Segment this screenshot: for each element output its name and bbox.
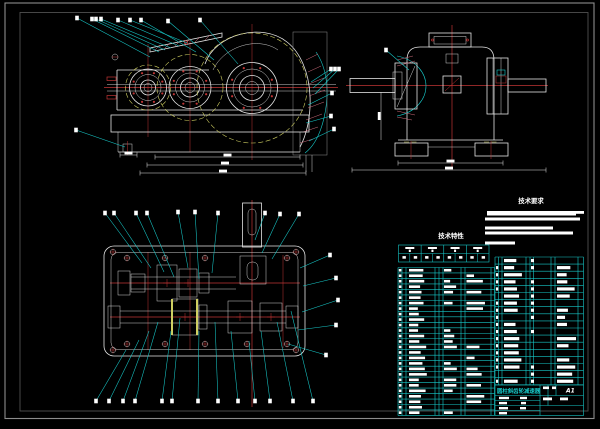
bom-cell-text (409, 296, 421, 299)
part-balloon-label (278, 212, 282, 217)
tech-requirements-heading: 技术要求 (518, 196, 544, 205)
part-balloon-label (94, 17, 98, 22)
bom-cell-text (531, 259, 534, 262)
bom-cell-text (409, 313, 419, 316)
flange-bolt (153, 101, 155, 103)
bom-cell-text (409, 274, 423, 277)
part-balloon-label (145, 211, 149, 216)
bom-cell-text (444, 362, 451, 365)
part-balloon-label (116, 18, 120, 23)
title-block-text (499, 397, 509, 399)
bom-cell-text (399, 296, 402, 299)
bom-cell-text (409, 411, 419, 414)
bom-cell-text (409, 291, 422, 294)
bom-cell-text (531, 373, 534, 376)
bom-cell-text (399, 291, 402, 294)
bom-cell-text (496, 309, 498, 312)
part-balloon-label (324, 353, 328, 358)
flange-bolt (153, 72, 155, 74)
bom-cell-text (399, 390, 402, 393)
bom-cell-text (444, 411, 453, 414)
side-view (346, 25, 548, 168)
bom-cell-text (409, 335, 424, 338)
flange-bolt (243, 107, 245, 109)
bom-cell-text (496, 380, 498, 383)
part-balloon-label (253, 399, 257, 404)
bom-cell-text (557, 273, 567, 276)
bom-cell-text (496, 280, 498, 283)
bom-cell-text (504, 273, 522, 276)
bom-cell-text (444, 291, 453, 294)
bom-cell-text (444, 280, 450, 283)
part-balloon-label (90, 17, 94, 22)
bom-cell-text (399, 357, 402, 360)
bom-cell-text (399, 280, 402, 283)
part-balloon-label (170, 399, 174, 404)
flange-bolt (173, 80, 175, 82)
bom-cell-text (467, 395, 485, 398)
bom-cell-text (399, 307, 402, 310)
bom-cell-text (467, 384, 482, 387)
plan-section-view (104, 200, 305, 407)
bom-cell-text (444, 335, 454, 338)
bom-cell-text (531, 309, 534, 312)
bom-cell-text (399, 351, 402, 354)
part-balloon-label (329, 114, 333, 119)
bom-cell-text (399, 340, 402, 343)
flange-bolt (182, 103, 184, 105)
bom-cell-text (496, 287, 498, 290)
bom-cell-text (409, 384, 419, 387)
bom-cell-text (504, 330, 517, 333)
bom-cell-text (444, 346, 457, 349)
title-block-text (543, 398, 552, 401)
flange-bolt (231, 79, 233, 81)
bom-cell-text (409, 285, 420, 288)
bom-cell-text (399, 335, 402, 338)
bom-cell-text (399, 368, 402, 371)
bom-cell-text (467, 280, 483, 283)
bom-cell-text (504, 287, 517, 290)
part-balloon-label (134, 211, 138, 216)
bom-cell-text (504, 323, 515, 326)
flange-bolt (141, 101, 143, 103)
bom-cell-text (467, 274, 475, 277)
bom-cell-text (399, 411, 402, 414)
bom-cell-text (496, 344, 498, 347)
bom-cell-text (496, 302, 498, 305)
bom-cell-text (399, 346, 402, 349)
bom-cell-text (504, 302, 517, 305)
dimension-text (125, 152, 133, 155)
part-balloon-label (166, 19, 170, 24)
bom-cell-text (531, 316, 534, 319)
flange-bolt (271, 79, 273, 81)
bom-cell-text (504, 280, 516, 283)
flange-bolt (161, 80, 163, 82)
bom-cell-text (504, 309, 518, 312)
tech-requirement-line (485, 242, 515, 245)
flange-bolt (133, 92, 135, 94)
bom-cell-text (557, 309, 568, 312)
bom-cell-text (409, 269, 423, 272)
bom-cell-text (531, 365, 534, 368)
part-balloon-label (176, 210, 180, 215)
bom-cell-text (399, 285, 402, 288)
part-balloon-label (160, 399, 164, 404)
bom-cell-text (496, 365, 498, 368)
part-balloon-label (328, 253, 332, 258)
bom-cell-text (409, 329, 418, 332)
bom-cell-text (399, 406, 402, 409)
technical-requirements-block: 技术要求 (485, 196, 584, 245)
part-balloon-label (333, 67, 337, 72)
title-block-text (499, 402, 507, 404)
flange-bolt (173, 93, 175, 95)
flange-bolt (196, 70, 198, 72)
part-balloon-label (94, 399, 98, 404)
bom-table-right (495, 257, 584, 385)
flange-bolt (182, 70, 184, 72)
title-block-text (520, 407, 526, 409)
bom-cell-text (399, 269, 402, 272)
tech-characteristics-heading: 技术特性 (438, 231, 464, 240)
bom-cell-text (531, 302, 534, 305)
flange-bolt (196, 103, 198, 105)
part-balloon-label (332, 127, 336, 132)
flange-bolt (259, 67, 261, 69)
part-balloon-label (133, 399, 137, 404)
technical-characteristics-table (399, 245, 490, 262)
bom-cell-text (467, 346, 480, 349)
bom-cell-text (557, 294, 570, 297)
title-block-text (560, 398, 568, 401)
bom-cell-text (557, 266, 570, 269)
tech-requirement-line (485, 227, 553, 230)
part-balloon-label (236, 399, 240, 404)
flange-bolt (259, 107, 261, 109)
bom-cell-text (399, 373, 402, 376)
flange-bolt (133, 80, 135, 82)
title-block-text (521, 402, 526, 404)
part-balloon-label (74, 128, 78, 133)
bom-cell-text (444, 302, 453, 305)
part-balloon-label (75, 16, 79, 21)
part-balloon-label (384, 48, 388, 53)
bom-cell-text (504, 365, 519, 368)
bom-cell-text (409, 395, 421, 398)
part-balloon-label (263, 211, 267, 216)
flange-bolt (231, 95, 233, 97)
bom-cell-text (399, 329, 402, 332)
bom-cell-text (399, 362, 402, 365)
bom-cell-text (496, 273, 498, 276)
bom-cell-text (531, 380, 534, 383)
bom-cell-text (467, 368, 478, 371)
bom-cell-text (531, 294, 534, 297)
bom-cell-text (496, 316, 498, 319)
dimension-text (447, 160, 455, 163)
drawing-title: 圆柱斜齿轮减速器 (497, 387, 541, 395)
bom-cell-text (467, 357, 475, 360)
part-balloon-label (216, 211, 220, 216)
bom-cell-text (444, 340, 453, 343)
bom-cell-text (504, 294, 519, 297)
bom-cell-text (504, 337, 519, 340)
bom-cell-text (409, 340, 419, 343)
view1-balloon-leaders (74, 16, 341, 147)
flange-bolt (271, 95, 273, 97)
bom-cell-text (496, 358, 498, 361)
bom-cell-text (399, 318, 402, 321)
title-block-text (499, 412, 507, 414)
bom-cell-text (531, 287, 534, 290)
bom-cell-text (467, 302, 485, 305)
bom-cell-text (409, 362, 422, 365)
bom-cell-text (409, 318, 424, 321)
bom-cell-text (409, 368, 425, 371)
bom-cell-text (444, 269, 451, 272)
bom-cell-text (557, 316, 565, 319)
bom-cell-text (496, 337, 498, 340)
technical-characteristics-block: 技术特性 (438, 231, 464, 240)
part-balloon-label (334, 276, 338, 281)
bom-cell-text (504, 358, 521, 361)
bom-cell-text (399, 384, 402, 387)
bom-cell-text (399, 324, 402, 327)
dimension-text (219, 170, 227, 173)
title-block-text (543, 387, 549, 390)
bom-cell-text (409, 324, 418, 327)
bom-cell-text (504, 259, 516, 262)
part-balloon-label (193, 210, 197, 215)
bom-cell-text (557, 344, 568, 347)
tech-requirement-line (487, 211, 576, 216)
bom-cell-text (409, 346, 426, 349)
bom-cell-text (467, 291, 482, 294)
bom-table-left (398, 268, 495, 416)
title-block-text (552, 387, 556, 390)
bom-cell-text (409, 357, 425, 360)
bom-cell-text (496, 323, 498, 326)
view4-balloon-leaders (94, 210, 340, 404)
dimension-text (224, 154, 232, 157)
part-balloon-label (99, 17, 103, 22)
part-balloon-label (291, 399, 295, 404)
title-block-text (499, 407, 508, 409)
tech-requirement-line (485, 232, 573, 235)
part-balloon-label (297, 212, 301, 217)
bom-cell-text (496, 330, 498, 333)
flange-bolt (141, 72, 143, 74)
bom-cell-text (399, 274, 402, 277)
bom-cell-text (444, 379, 456, 382)
bom-cell-text (557, 280, 567, 283)
part-balloon-label (329, 67, 333, 72)
part-balloon-label (112, 211, 116, 216)
bom-cell-text (557, 358, 569, 361)
bom-cell-text (399, 395, 402, 398)
bom-cell-text (531, 280, 534, 283)
bom-cell-text (504, 266, 514, 269)
part-balloon-label (216, 399, 220, 404)
part-balloon-label (128, 18, 132, 23)
bom-cell-text (409, 406, 422, 409)
bom-cell-text (467, 307, 483, 310)
bom-cell-text (399, 379, 402, 382)
tech-requirement-line (485, 218, 580, 221)
bom-cell-text (409, 351, 421, 354)
bom-cell-text (496, 266, 498, 269)
bom-cell-text (409, 373, 427, 376)
bom-cell-text (504, 344, 518, 347)
bom-cell-text (399, 313, 402, 316)
part-balloon-label (196, 399, 200, 404)
part-balloon-label (121, 399, 125, 404)
bom-cell-text (409, 280, 424, 283)
flange-bolt (243, 67, 245, 69)
bom-cell-text (467, 373, 482, 376)
bom-cell-text (409, 302, 424, 305)
bom-cell-text (531, 330, 534, 333)
bom-cell-text (444, 390, 453, 393)
tech-requirement-line (576, 211, 584, 214)
dimension-text (378, 112, 381, 120)
flange-bolt (161, 92, 163, 94)
bom-cell-text (557, 337, 576, 340)
title-block-text (520, 397, 527, 399)
part-balloon-label (336, 298, 340, 303)
cad-drawing-canvas[interactable]: 技术要求 技术特性 圆柱斜齿轮减速器 A1 (0, 0, 600, 429)
bom-cell-text (444, 368, 457, 371)
bom-cell-text (409, 390, 426, 393)
part-balloon-label (103, 211, 107, 216)
bom-cell-text (399, 400, 402, 403)
bom-cell-text (409, 400, 420, 403)
bom-cell-text (531, 266, 534, 269)
dimension-text (221, 162, 229, 165)
sheet-size-label: A1 (565, 388, 575, 395)
part-balloon-label (198, 18, 202, 23)
dimension-text (445, 167, 453, 170)
bom-cell-text (444, 285, 456, 288)
bom-cell-text (399, 302, 402, 305)
flange-bolt (205, 80, 207, 82)
part-balloon-label (334, 323, 338, 328)
bom-cell-text (444, 329, 450, 332)
bom-cell-text (557, 380, 573, 383)
part-balloon-label (337, 67, 341, 72)
flange-bolt (205, 93, 207, 95)
bom-cell-text (496, 351, 498, 354)
part-balloon-label (330, 91, 334, 96)
bom-cell-text (504, 351, 519, 354)
part-balloon-label (139, 18, 143, 23)
bom-cell-text (557, 365, 575, 368)
part-balloon-label (268, 399, 272, 404)
bom-cell-text (467, 400, 482, 403)
front-section-view (104, 24, 338, 172)
view3-balloon-leaders (384, 48, 409, 70)
bom-cell-text (409, 307, 418, 310)
part-balloon-label (107, 399, 111, 404)
bom-cell-text (504, 380, 518, 383)
bom-cell-text (557, 287, 575, 290)
bom-cell-text (557, 323, 567, 326)
part-balloon-label (311, 399, 315, 404)
bom-cell-text (557, 373, 572, 376)
bom-cell-text (409, 379, 419, 382)
bom-cell-text (444, 384, 456, 387)
